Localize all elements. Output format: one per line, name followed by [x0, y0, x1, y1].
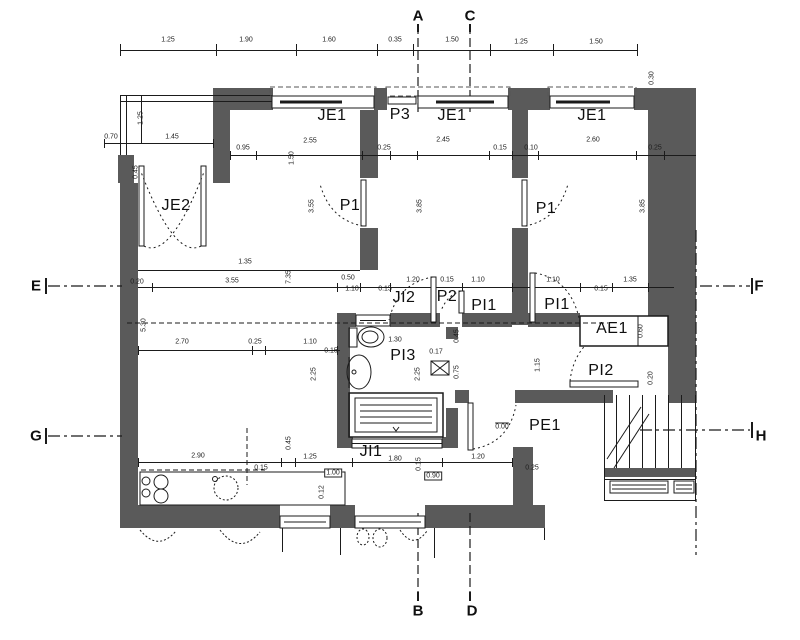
dimension-label: 0.25 [248, 339, 262, 346]
dimension-label: 1.90 [239, 37, 253, 44]
section-marker-label: A [413, 9, 424, 24]
dimension-label: 1.50 [445, 37, 459, 44]
dimension-label-vertical: 0.75 [454, 365, 461, 379]
dimension-label: 2.55 [303, 138, 317, 145]
room-label: AE1 [596, 321, 628, 337]
floor-plan: JE1P3JE1JE1JE2P1P1JI2P2PI1PI1AE1PI3PI2PE… [0, 0, 800, 640]
dimension-label: 1.35 [238, 259, 252, 266]
dimension-label: 3.55 [225, 278, 239, 285]
room-label: JE1 [317, 108, 346, 124]
duct-shaft [431, 361, 449, 375]
dimension-label: 1.10 [303, 339, 317, 346]
dimension-label-vertical: 1.50 [289, 151, 296, 165]
section-marker-label: C [465, 9, 476, 24]
dimension-label: 1.80 [388, 456, 402, 463]
dimension-label-vertical: 0.20 [648, 371, 655, 385]
dimension-label-vertical: 2.25 [311, 367, 318, 381]
dimension-label: 2.60 [586, 137, 600, 144]
dimension-label: 0.20 [130, 279, 144, 286]
room-label: JI2 [393, 290, 416, 306]
toilet [349, 327, 384, 347]
dimension-label: 2.90 [191, 453, 205, 460]
dimension-label: 0.35 [388, 37, 402, 44]
dimension-label: 1.25 [303, 454, 317, 461]
dimension-label-vertical: 1.15 [535, 358, 542, 372]
room-label: PI3 [390, 348, 416, 364]
dimension-label-vertical: 3.85 [640, 199, 647, 213]
dimension-label-vertical: 0.15 [416, 457, 423, 471]
dimension-label: 1.00 [324, 469, 342, 478]
room-label: P2 [437, 289, 458, 305]
dimension-label: 1.10 [471, 277, 485, 284]
room-label: PI1 [471, 298, 497, 314]
section-marker-label: F [754, 279, 763, 294]
room-label: P1 [536, 201, 557, 217]
dimension-label-vertical: 0.45 [286, 436, 293, 450]
window-ji2 [356, 315, 390, 326]
dimension-label: 2.70 [175, 339, 189, 346]
washbasin [347, 355, 371, 389]
lower-unit-fragments [140, 528, 545, 558]
room-label: P1 [340, 198, 361, 214]
window-je1-3 [548, 87, 636, 108]
section-marker-label: B [413, 604, 424, 619]
dimension-label: 0.17 [429, 349, 443, 356]
dimension-label: 1.30 [388, 337, 402, 344]
dimension-label: 1.20 [471, 454, 485, 461]
dimension-label: 1.20 [406, 277, 420, 284]
room-label: JI1 [360, 444, 383, 460]
dimension-label-vertical: 0.45 [454, 329, 461, 343]
window-je1-2 [386, 87, 510, 108]
section-marker-label: E [31, 279, 41, 294]
dimension-label: 1.50 [589, 39, 603, 46]
dimension-label: 2.45 [436, 137, 450, 144]
dimension-label-vertical: 0.30 [649, 71, 656, 85]
dimension-label: 1.10 [546, 277, 560, 284]
dimension-label-vertical: 0.45 [133, 165, 140, 179]
room-label: JE1 [437, 108, 466, 124]
room-label: PE1 [529, 418, 561, 434]
dimension-label: 1.25 [514, 39, 528, 46]
dimension-label: 1.25 [161, 37, 175, 44]
room-label: P3 [390, 107, 411, 123]
dimension-label-vertical: 7.35 [286, 270, 293, 284]
dimension-label: 0.00 [495, 424, 509, 431]
kitchen-sink [213, 476, 239, 500]
section-marker-label: G [30, 429, 42, 444]
bathtub [349, 393, 443, 437]
dimension-label-vertical: 1.25 [138, 111, 145, 125]
window-je1-1 [270, 87, 376, 108]
dimension-label: 1.10 [345, 286, 359, 293]
room-label: JE2 [161, 198, 190, 214]
dimension-label: 0.15 [493, 145, 507, 152]
dimension-label: 0.25 [377, 145, 391, 152]
dimension-label: 0.90 [424, 472, 442, 481]
section-marker-label: D [467, 604, 478, 619]
dimension-label: 0.15 [594, 286, 608, 293]
dimension-label: 1.60 [322, 37, 336, 44]
dimension-label: 0.95 [236, 145, 250, 152]
dimension-label-vertical: 3.85 [417, 199, 424, 213]
room-label: JE1 [577, 108, 606, 124]
room-label: PI2 [588, 363, 614, 379]
dimension-label: 0.15 [378, 286, 392, 293]
dimension-label-vertical: 0.60 [638, 324, 645, 338]
window-bottom-2 [355, 516, 425, 528]
dimension-label: 1.45 [165, 134, 179, 141]
dimension-label: 0.15 [440, 277, 454, 284]
dimension-label-vertical: 5.30 [141, 318, 148, 332]
dimension-label: 0.25 [648, 145, 662, 152]
dimension-label: 0.15 [254, 465, 268, 472]
stove-burners [142, 475, 168, 503]
section-marker-label: H [756, 429, 767, 444]
door-p3-panel [388, 97, 416, 104]
stairs [607, 395, 694, 493]
dimension-label: 0.15 [324, 348, 338, 355]
room-label: PI1 [544, 297, 570, 313]
dimension-label: 0.50 [341, 275, 355, 282]
window-bottom-1 [280, 516, 330, 528]
dimension-label: 0.10 [524, 145, 538, 152]
windows [270, 87, 636, 528]
floor-plan-drawing [0, 0, 800, 640]
dimension-label: 1.35 [623, 277, 637, 284]
dimension-label-vertical: 0.12 [319, 485, 326, 499]
dimension-label-vertical: 2.25 [415, 367, 422, 381]
dimension-label: 0.25 [525, 465, 539, 472]
dimension-label-vertical: 3.55 [309, 199, 316, 213]
dimension-label: 0.70 [104, 134, 118, 141]
